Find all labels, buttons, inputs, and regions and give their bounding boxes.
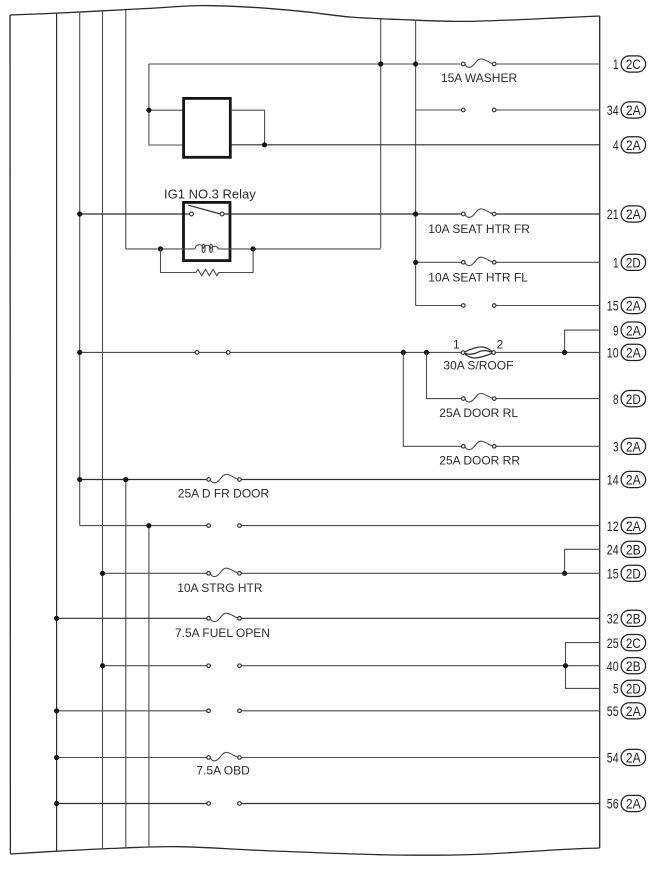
svg-text:7.5A FUEL OPEN: 7.5A FUEL OPEN [175, 626, 270, 640]
svg-text:24: 24 [607, 542, 619, 558]
svg-text:2A: 2A [626, 137, 641, 153]
svg-text:15: 15 [607, 298, 619, 314]
svg-text:2D: 2D [626, 566, 641, 582]
svg-text:25A D FR DOOR: 25A D FR DOOR [178, 487, 270, 501]
svg-text:2B: 2B [626, 611, 641, 627]
svg-text:25A DOOR RL: 25A DOOR RL [439, 406, 518, 420]
svg-text:15: 15 [607, 566, 619, 582]
svg-text:10A SEAT HTR FR: 10A SEAT HTR FR [428, 222, 530, 236]
svg-text:2A: 2A [626, 322, 641, 338]
svg-text:2A: 2A [626, 345, 641, 361]
svg-text:1: 1 [613, 56, 619, 72]
svg-text:54: 54 [607, 750, 619, 766]
svg-text:3: 3 [613, 439, 619, 455]
svg-text:4: 4 [613, 137, 619, 153]
svg-text:10A STRG HTR: 10A STRG HTR [177, 581, 263, 595]
svg-text:2B: 2B [626, 542, 641, 558]
svg-text:2A: 2A [626, 750, 641, 766]
svg-text:2D: 2D [626, 255, 641, 271]
svg-text:55: 55 [607, 703, 619, 719]
svg-text:2A: 2A [626, 298, 641, 314]
svg-text:7.5A OBD: 7.5A OBD [196, 764, 250, 778]
svg-text:14: 14 [607, 472, 619, 488]
svg-text:2C: 2C [626, 56, 641, 72]
svg-text:32: 32 [607, 611, 619, 627]
svg-text:10A SEAT HTR FL: 10A SEAT HTR FL [428, 271, 528, 285]
svg-text:5: 5 [613, 681, 619, 697]
svg-text:2D: 2D [626, 681, 641, 697]
svg-text:2: 2 [497, 338, 504, 352]
svg-text:15A WASHER: 15A WASHER [441, 71, 518, 85]
svg-text:8: 8 [613, 391, 619, 407]
svg-text:2A: 2A [626, 102, 641, 118]
svg-text:2D: 2D [626, 391, 641, 407]
svg-text:2A: 2A [626, 439, 641, 455]
svg-text:1: 1 [453, 338, 460, 352]
svg-text:25A DOOR RR: 25A DOOR RR [439, 454, 520, 468]
svg-text:IG1 NO.3 Relay: IG1 NO.3 Relay [164, 187, 256, 202]
svg-text:12: 12 [607, 518, 619, 534]
svg-text:1: 1 [613, 255, 619, 271]
svg-text:2A: 2A [626, 796, 641, 812]
svg-text:2A: 2A [626, 518, 641, 534]
svg-text:2C: 2C [626, 635, 641, 651]
svg-text:2A: 2A [626, 206, 641, 222]
svg-text:21: 21 [607, 206, 619, 222]
svg-text:56: 56 [607, 796, 619, 812]
svg-text:25: 25 [607, 635, 619, 651]
svg-text:9: 9 [613, 322, 619, 338]
svg-text:34: 34 [607, 102, 619, 118]
svg-text:40: 40 [607, 658, 619, 674]
svg-text:2A: 2A [626, 472, 641, 488]
svg-text:10: 10 [607, 345, 619, 361]
svg-text:30A S/ROOF: 30A S/ROOF [443, 359, 513, 373]
svg-text:2A: 2A [626, 703, 641, 719]
svg-text:2B: 2B [626, 658, 641, 674]
